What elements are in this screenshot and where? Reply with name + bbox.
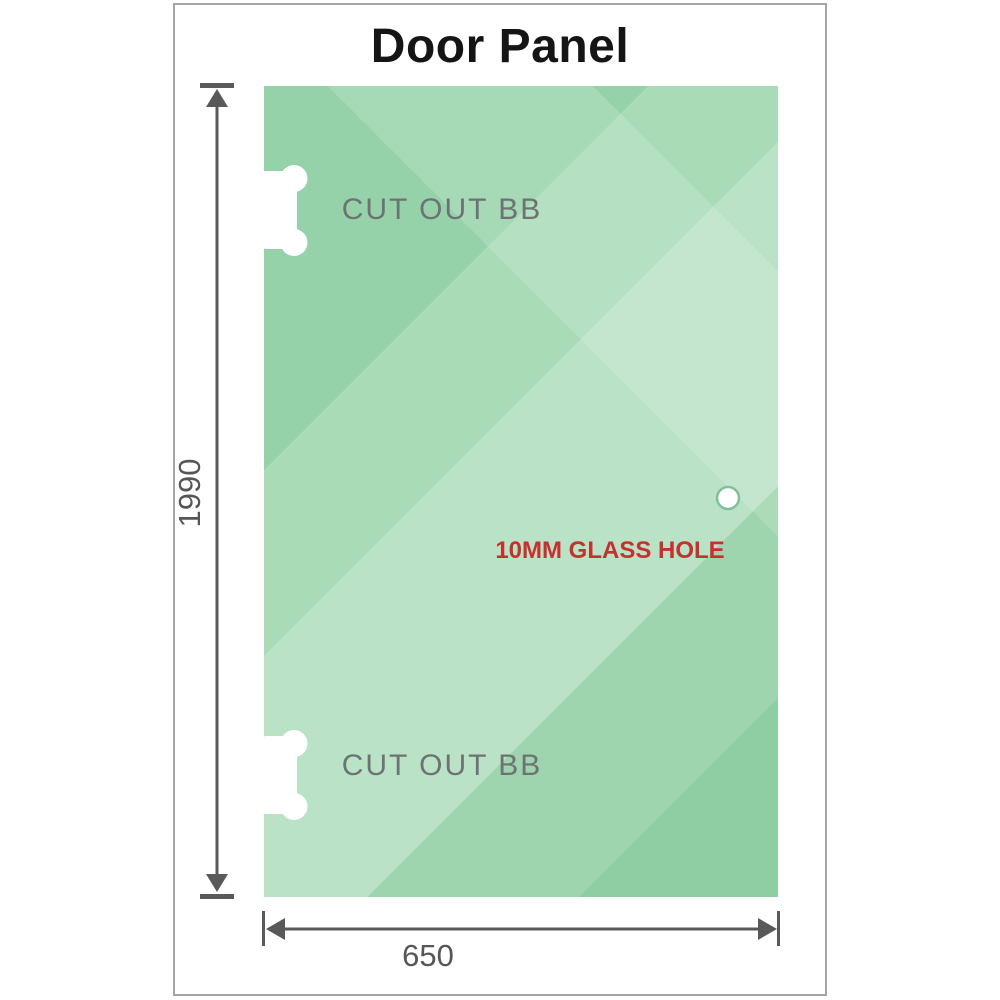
height-dim-arrowhead-up-icon — [206, 89, 228, 107]
hinge-cutout-top — [261, 165, 308, 256]
height-dim-arrowhead-down-icon — [206, 874, 228, 892]
cutout-label-top: CUT OUT BB — [342, 193, 543, 227]
width-dimension-value: 650 — [402, 938, 454, 974]
height-dim-cap-top — [200, 83, 234, 88]
width-dim-arrowhead-right-icon — [758, 918, 777, 940]
width-dimension-arrow — [262, 911, 780, 946]
width-dim-tick-left — [262, 911, 265, 946]
width-dim-line — [283, 928, 760, 931]
height-dim-cap-bottom — [200, 894, 234, 899]
diagram-shapes — [0, 0, 1000, 1000]
glass-hole-label: 10MM GLASS HOLE — [495, 537, 724, 565]
cutout-label-bottom: CUT OUT BB — [342, 749, 543, 783]
height-dim-line — [216, 105, 219, 876]
glass-hole — [717, 487, 739, 509]
width-dim-arrowhead-left-icon — [266, 918, 285, 940]
width-dim-tick-right — [777, 911, 780, 946]
height-dimension-value: 1990 — [172, 459, 208, 528]
hinge-cutout-bottom — [261, 730, 308, 820]
